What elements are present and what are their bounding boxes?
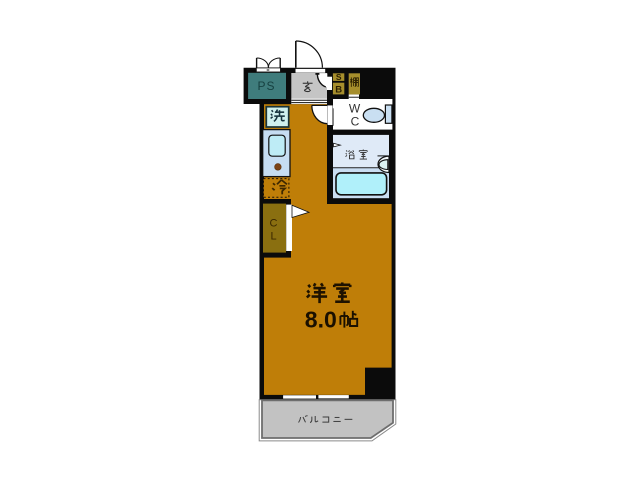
svg-text:S: S [336,72,342,82]
svg-text:PS: PS [257,79,275,93]
svg-text:L: L [270,231,276,243]
svg-text:W: W [349,102,361,116]
svg-text:8.0: 8.0 [305,306,337,332]
svg-text:C: C [270,218,278,230]
svg-text:C: C [351,115,360,129]
svg-text:B: B [335,84,342,95]
